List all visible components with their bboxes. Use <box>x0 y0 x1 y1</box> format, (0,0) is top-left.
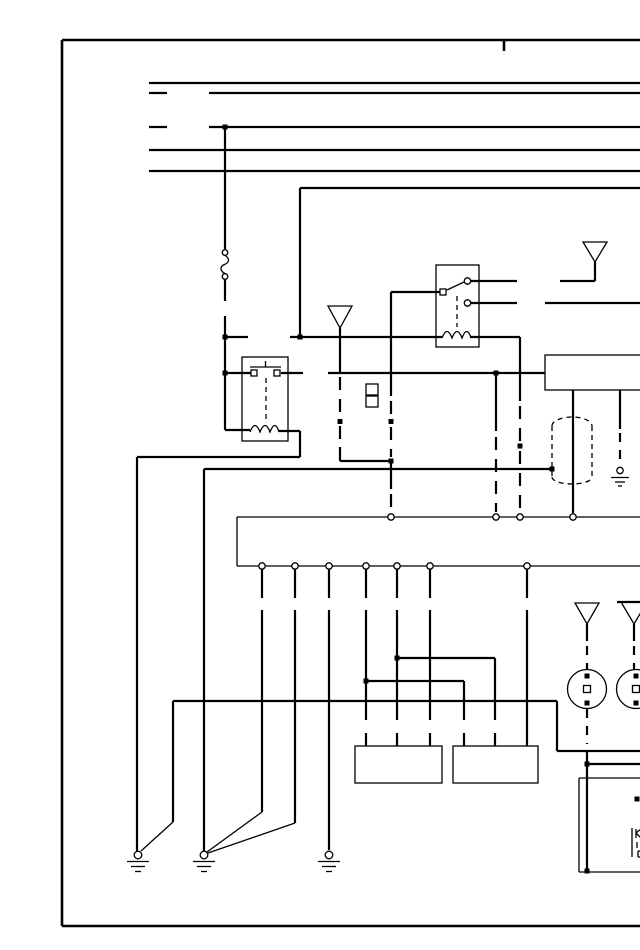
module-box-bottom-right <box>579 778 640 872</box>
breaker-element <box>221 256 229 274</box>
shield-ground-wire <box>204 469 552 851</box>
relay-2 <box>137 357 300 851</box>
splice-diagonal <box>141 822 173 851</box>
pin <box>326 563 332 569</box>
ground-2 <box>193 851 215 871</box>
relay1-coil <box>442 332 471 339</box>
pin <box>388 514 394 520</box>
pin <box>394 563 400 569</box>
speaker-terminal <box>634 701 639 706</box>
antenna-symbol-mid <box>328 306 391 461</box>
pin <box>524 563 530 569</box>
splice-diagonal <box>207 812 262 852</box>
relay2-coil <box>250 426 279 433</box>
antenna-symbol-speaker-left <box>575 603 599 624</box>
ground-4 <box>611 467 629 486</box>
splice-diagonal <box>208 823 295 853</box>
pin <box>570 514 576 520</box>
junction-dots <box>223 125 640 874</box>
pin <box>427 563 433 569</box>
power-bus-wires <box>149 83 640 337</box>
wiring-diagram: wiring schematic <box>0 0 640 950</box>
relay1-armature <box>447 282 464 290</box>
schematic-page: wiring schematic <box>0 0 640 950</box>
cross-wire-701 <box>141 701 640 851</box>
relay1-contact-b <box>464 300 470 306</box>
module-box-2 <box>453 746 538 783</box>
module-box-1 <box>355 746 442 783</box>
relay1-contact-a <box>464 278 470 284</box>
relay2-contact-b <box>274 370 280 376</box>
connector-drop-wires <box>207 569 527 853</box>
inline-connector-symbols <box>366 384 378 407</box>
pin <box>259 563 265 569</box>
ground-1 <box>127 851 149 871</box>
relay1-coil-feed-wire <box>225 337 520 512</box>
pin <box>363 563 369 569</box>
speaker-terminal <box>634 674 639 679</box>
speaker-terminal <box>585 701 590 706</box>
speaker-magnet <box>584 686 591 693</box>
radio-unit-box <box>545 355 640 513</box>
antenna-symbol-top <box>560 242 607 281</box>
clipped-label-glyphs <box>632 828 640 857</box>
speaker-terminal <box>585 674 590 679</box>
relay2-contact-a <box>251 370 257 376</box>
pin <box>517 514 523 520</box>
ground-3 <box>318 851 340 871</box>
relay-1 <box>391 265 640 347</box>
circuit-breaker <box>221 127 250 430</box>
speaker-magnet <box>633 686 640 693</box>
pin <box>493 514 499 520</box>
speaker-right <box>617 602 640 709</box>
relay1-common-terminal <box>440 289 446 295</box>
connector-feed-wires <box>391 292 496 512</box>
page-border <box>62 40 640 926</box>
pin <box>292 563 298 569</box>
connector-block <box>237 514 640 569</box>
